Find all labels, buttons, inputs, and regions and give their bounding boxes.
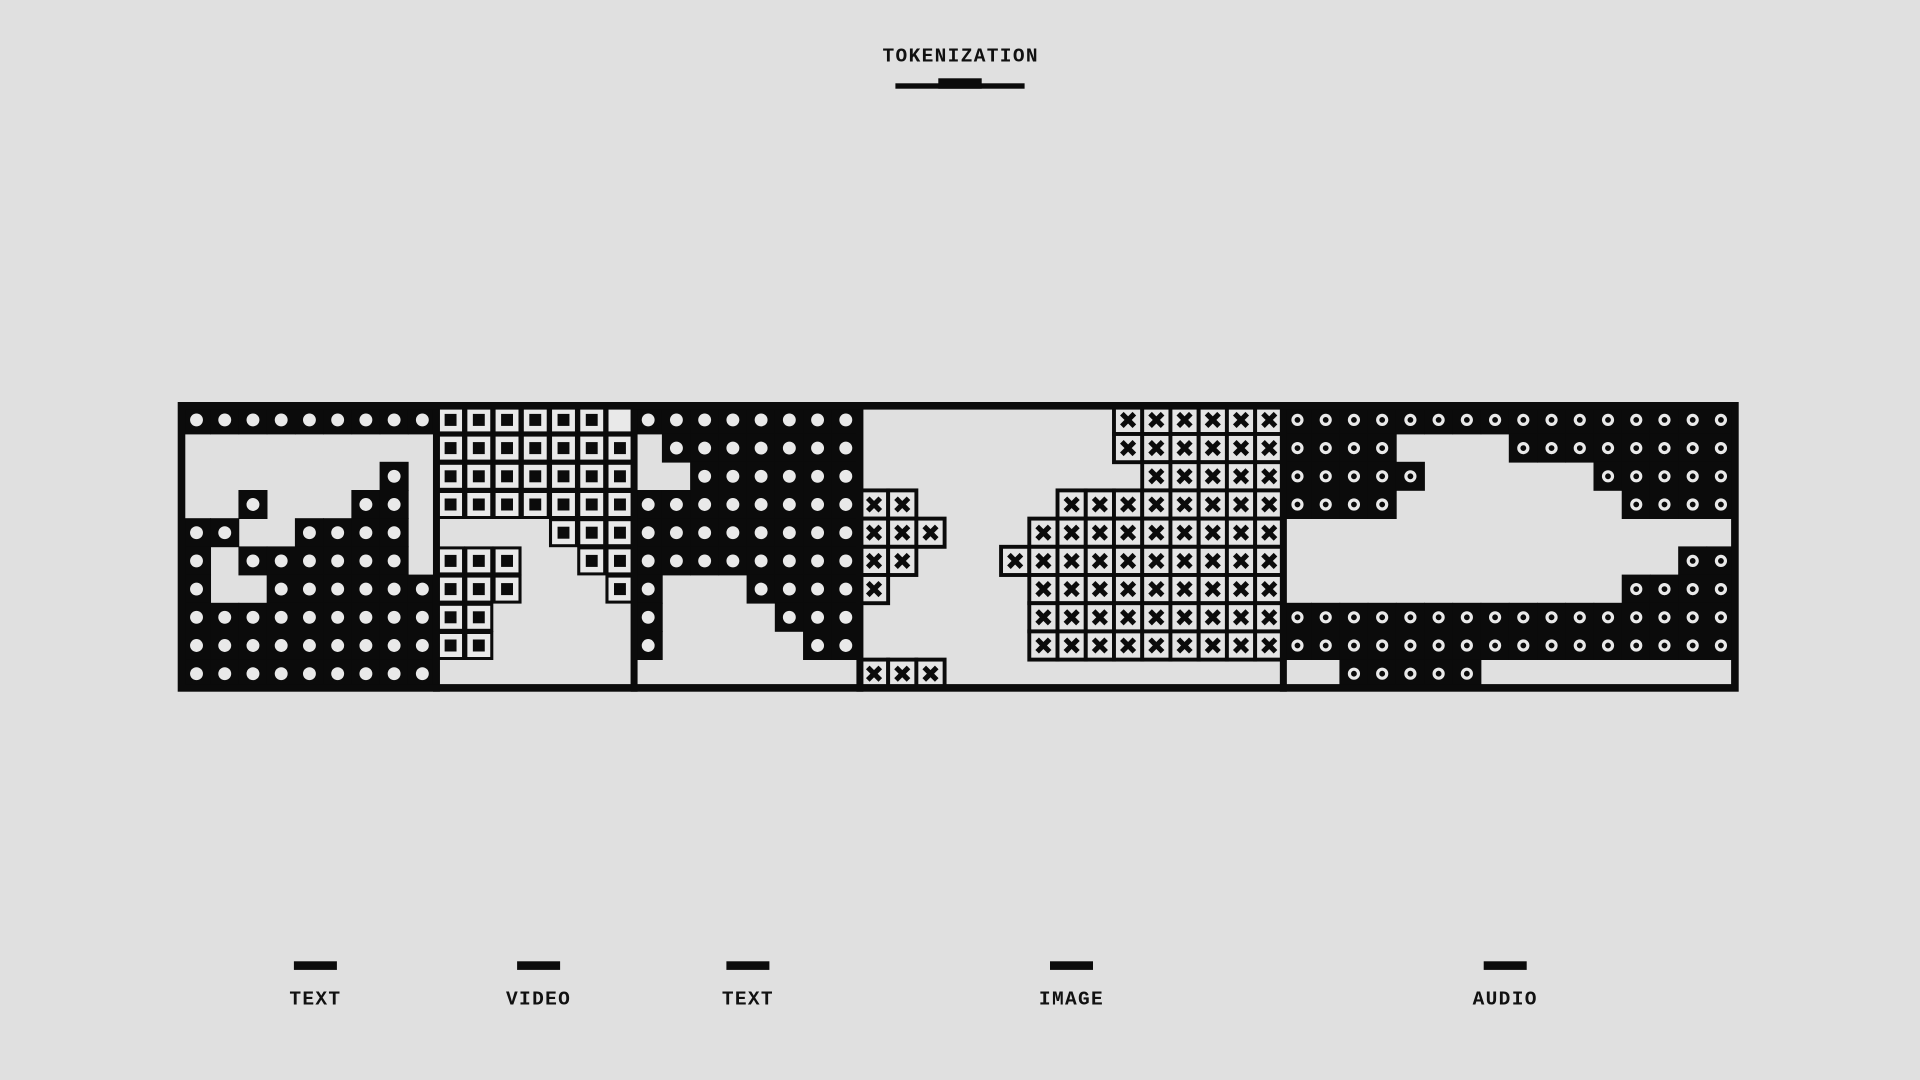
svg-text:TEXT: TEXT [722, 989, 774, 1011]
svg-text:AUDIO: AUDIO [1473, 989, 1538, 1011]
svg-text:IMAGE: IMAGE [1039, 989, 1104, 1011]
svg-text:VIDEO: VIDEO [506, 989, 571, 1011]
svg-text:TEXT: TEXT [289, 989, 341, 1011]
svg-text:TOKENIZATION: TOKENIZATION [883, 46, 1039, 68]
